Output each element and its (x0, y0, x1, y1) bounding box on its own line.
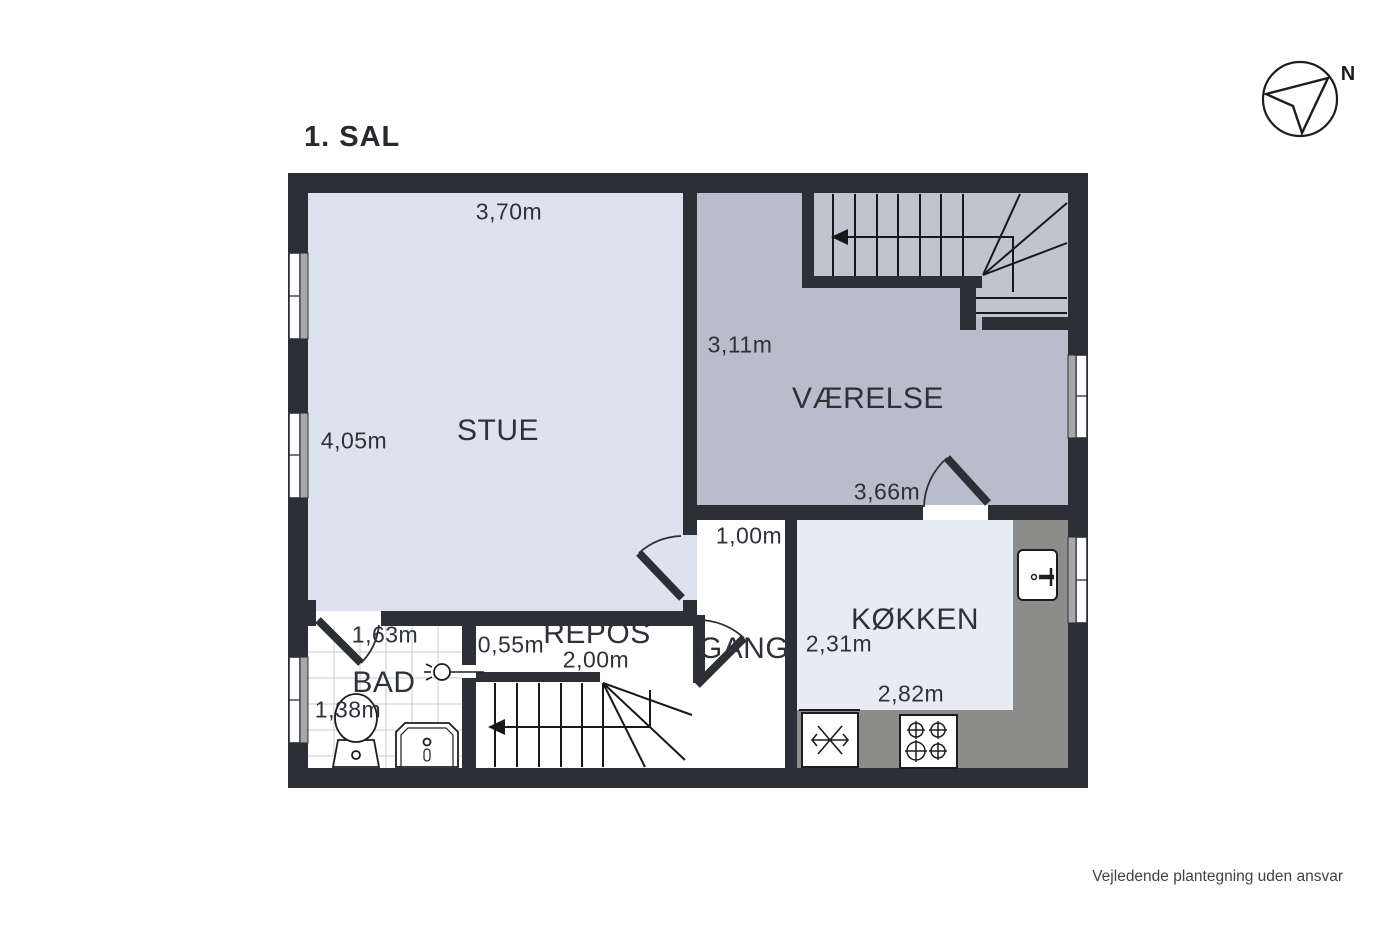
radiator-wall-notch (462, 665, 476, 678)
stairs-bottom-arrow (488, 719, 505, 735)
north-label: N (1341, 63, 1355, 85)
room-label-vaerelse: VÆRELSE (792, 382, 944, 416)
wall-stairs-bottom (802, 276, 982, 288)
wall-bad-stub (308, 600, 316, 626)
stairs-top-floor-winder (976, 276, 1068, 317)
dim-stue-left: 4,05m (321, 428, 387, 455)
wall-vaerelse-bottom-a (697, 505, 923, 520)
room-label-bad: BAD (352, 666, 415, 700)
koekken-counter-bottom (797, 710, 1068, 768)
floor-plan: STUE 3,70m 4,05m VÆRELSE 3,11m 3,66m KØK… (288, 173, 1088, 788)
wall-stue-vaerelse (683, 193, 697, 535)
stairs-bottom (495, 683, 692, 767)
room-label-stue: STUE (457, 414, 539, 448)
dim-bad-top: 1,63m (352, 622, 418, 649)
dim-koekken-left: 2,31m (806, 631, 872, 658)
wall-outer-left (288, 173, 308, 788)
wall-vaerelse-bottom-b (988, 505, 1068, 520)
floor-title: 1. SAL (304, 121, 400, 154)
dim-gang-top: 1,00m (716, 523, 782, 550)
dim-stue-top: 3,70m (476, 199, 542, 226)
dim-repos-bottom: 2,00m (563, 647, 629, 674)
wall-bad-repos (462, 615, 476, 768)
vaerelse-door-opening (923, 505, 988, 520)
stue-floor (308, 193, 697, 611)
wall-stairs-stub (960, 288, 976, 330)
wall-stairs-left (802, 193, 814, 288)
dim-bad-left: 1,38m (315, 697, 381, 724)
dim-repos-left: 0,55m (478, 632, 544, 659)
compass-icon: N (1256, 52, 1368, 146)
stairs-top-floor (802, 193, 1068, 276)
wall-outer-bottom (288, 768, 1088, 788)
wall-stairs-winder-bottom (982, 317, 1068, 330)
disclaimer-text: Vejledende plantegning uden ansvar (1092, 868, 1343, 886)
dim-vaerelse-left: 3,11m (708, 332, 773, 359)
wall-outer-right (1068, 173, 1088, 788)
bathroom-sink-icon (396, 723, 458, 767)
room-label-gang: GANG (699, 632, 789, 666)
dim-vaerelse-bottom: 3,66m (854, 479, 920, 506)
dim-koekken-bottom: 2,82m (878, 681, 944, 708)
wall-outer-top (288, 173, 1088, 193)
floor-plan-page: 1. SAL N Vejledende plantegning uden ans… (0, 0, 1400, 933)
wall-repos-stairs (476, 672, 600, 682)
